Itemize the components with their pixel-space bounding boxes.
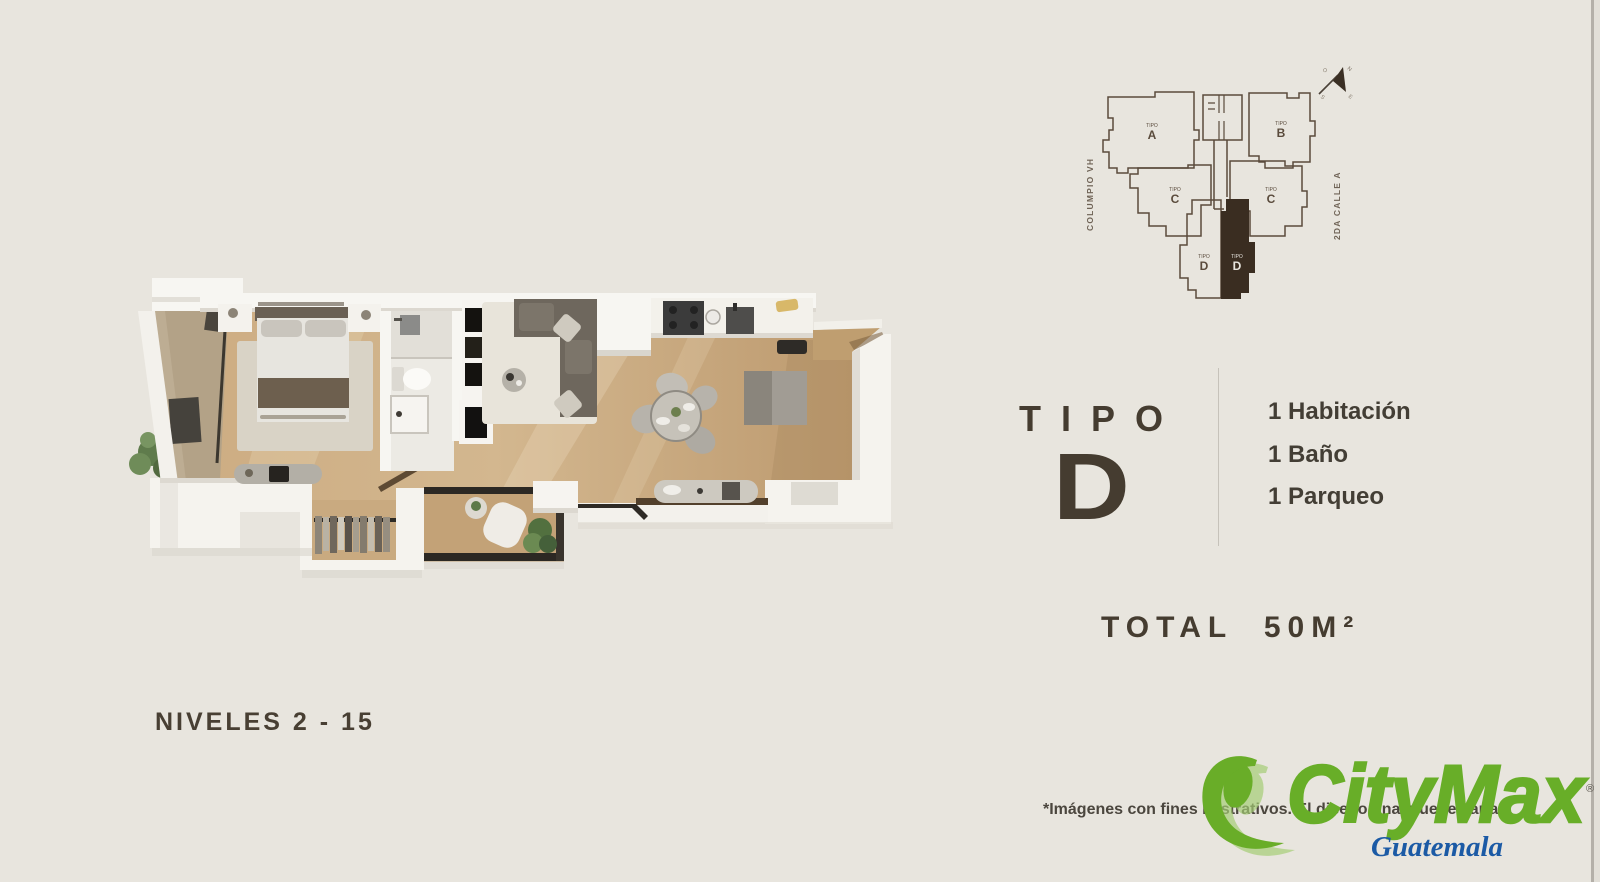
svg-text:COLUMPIO VH: COLUMPIO VH (1085, 158, 1095, 231)
svg-text:2DA CALLE A: 2DA CALLE A (1332, 171, 1342, 240)
svg-text:Guatemala: Guatemala (1371, 831, 1503, 863)
svg-text:N: N (1346, 66, 1353, 73)
svg-text:B: B (1277, 126, 1286, 140)
svg-text:D: D (1233, 259, 1242, 273)
svg-text:C: C (1267, 192, 1276, 206)
svg-text:®: ® (1586, 783, 1594, 795)
svg-text:S: S (1319, 94, 1326, 101)
svg-text:CityMax: CityMax (1287, 749, 1588, 840)
svg-text:O: O (1321, 67, 1329, 75)
svg-text:E: E (1347, 94, 1354, 101)
svg-text:D: D (1200, 259, 1209, 273)
svg-text:A: A (1148, 128, 1157, 142)
svg-text:C: C (1171, 192, 1180, 206)
